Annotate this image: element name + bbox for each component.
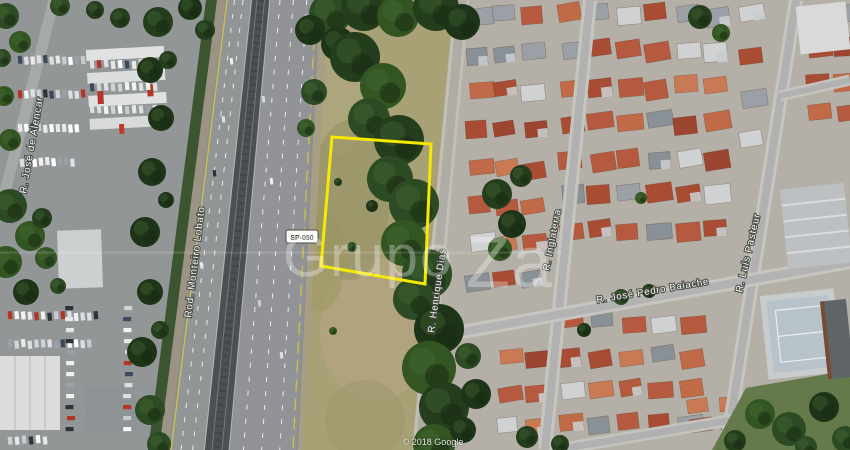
parked-car: [67, 416, 75, 420]
parked-car: [55, 90, 60, 98]
parked-car: [29, 436, 34, 444]
parked-car: [123, 328, 131, 332]
parked-car: [18, 56, 23, 64]
parked-car: [111, 106, 116, 114]
parked-car: [97, 60, 102, 68]
parked-car: [34, 339, 39, 347]
tree-shadow: [822, 405, 836, 419]
parked-car: [41, 339, 46, 347]
parked-car: [123, 317, 131, 321]
tree-shadow: [159, 116, 171, 128]
house-roof: [686, 397, 708, 414]
tree-shadow: [150, 170, 163, 183]
tree-shadow: [371, 205, 376, 210]
house-roof: [703, 76, 728, 94]
tree-shadow: [143, 230, 157, 244]
parked-car: [132, 105, 137, 113]
parked-car: [36, 435, 41, 443]
parked-car: [132, 61, 137, 69]
parked-car: [124, 306, 132, 310]
parked-car: [125, 106, 130, 114]
parked-car: [153, 83, 158, 91]
parked-car: [104, 59, 109, 67]
house-roof: [651, 315, 677, 334]
parked-car: [111, 83, 116, 91]
tree-shadow: [148, 290, 160, 302]
tree-shadow: [44, 256, 54, 266]
tree-shadow: [140, 350, 154, 364]
parked-car: [66, 361, 74, 365]
tree-shadow: [519, 174, 529, 184]
parked-car: [81, 56, 86, 64]
house-roof: [557, 1, 582, 22]
parked-car: [74, 56, 79, 64]
house-annex-roof: [573, 421, 585, 431]
house-roof: [703, 149, 731, 171]
parked-car: [104, 82, 109, 90]
house-roof: [643, 2, 666, 21]
house-roof: [616, 113, 644, 132]
house-annex-roof: [632, 386, 643, 396]
parked-car: [66, 427, 74, 431]
house-roof: [586, 184, 610, 204]
parked-car: [74, 313, 79, 321]
parked-car: [8, 339, 13, 347]
watermark-text-left: Grupo: [283, 224, 454, 289]
parked-car: [66, 372, 74, 376]
parked-car: [18, 90, 23, 98]
parked-car: [66, 339, 74, 343]
parked-car: [38, 158, 43, 166]
house-annex-roof: [601, 86, 613, 97]
parked-car: [139, 105, 144, 113]
parked-car: [60, 311, 65, 319]
satellite-map: SP-050 R. José de Alencar Rod. Monteiro …: [0, 0, 850, 450]
tree-shadow: [395, 136, 418, 159]
parked-car: [66, 328, 74, 332]
parked-car: [90, 60, 95, 68]
parked-car: [87, 339, 92, 347]
house-roof: [741, 88, 769, 108]
tree-shadow: [3, 95, 12, 104]
house-roof: [587, 416, 610, 435]
tree-shadow: [466, 354, 478, 366]
house-roof: [643, 79, 668, 101]
house-roof: [679, 349, 705, 370]
parked-car: [118, 60, 123, 68]
tree-shadow: [159, 329, 167, 337]
parked-car: [62, 89, 67, 97]
house-roof: [643, 41, 671, 63]
tree-shadow: [720, 32, 728, 40]
parked-car: [146, 82, 151, 90]
parked-car: [21, 311, 26, 319]
house-annex-roof: [478, 56, 488, 66]
house-roof: [616, 223, 639, 241]
parked-car: [123, 405, 131, 409]
parked-car: [22, 435, 27, 443]
parked-car: [45, 157, 50, 165]
parked-car: [43, 55, 48, 63]
tree-shadow: [640, 197, 645, 202]
tree-shadow: [119, 17, 128, 26]
parked-car: [65, 306, 73, 310]
house-roof: [465, 120, 487, 139]
house-annex-roof: [537, 128, 548, 138]
tree-shadow: [305, 127, 313, 135]
parked-car: [125, 82, 130, 90]
house-roof: [645, 182, 673, 204]
parked-car: [65, 317, 73, 321]
parked-car: [132, 82, 137, 90]
parked-car: [68, 90, 73, 98]
parked-car: [24, 90, 29, 98]
tree-shadow: [167, 59, 175, 67]
parked-car: [54, 311, 59, 319]
house-roof: [521, 42, 546, 61]
house-roof: [807, 103, 831, 121]
parked-car: [74, 339, 79, 347]
house-roof: [674, 74, 698, 93]
tree-shadow: [474, 392, 488, 406]
tree-shadow: [24, 290, 36, 302]
watermark-text-right: Za: [466, 223, 554, 303]
tree-shadow: [312, 90, 324, 102]
parked-car: [15, 437, 20, 445]
house-roof: [618, 77, 644, 97]
parked-car: [125, 60, 130, 68]
parked-car: [118, 83, 123, 91]
house-roof: [704, 183, 732, 204]
tree-shadow: [156, 20, 170, 34]
tree-shadow: [459, 19, 475, 35]
white-roof-building: [796, 2, 850, 55]
tree-shadow: [308, 28, 322, 42]
tree-shadow: [28, 234, 42, 248]
parked-car: [123, 394, 131, 398]
parked-car: [70, 159, 75, 167]
house-roof: [622, 316, 646, 333]
tree-shadow: [380, 83, 401, 104]
parked-car: [18, 124, 23, 132]
parked-car: [62, 56, 67, 64]
parked-car: [49, 56, 54, 64]
house-annex-roof: [601, 227, 612, 237]
parked-car: [66, 383, 74, 387]
parked-car: [90, 105, 95, 113]
house-roof: [615, 39, 642, 59]
parked-car: [41, 311, 46, 319]
house-roof: [561, 381, 586, 400]
parked-car: [123, 427, 131, 431]
house-roof: [520, 84, 546, 102]
parked-car: [90, 83, 95, 91]
house-roof: [651, 344, 676, 362]
parked-car: [14, 340, 19, 348]
house-annex-roof: [717, 51, 729, 62]
house-roof: [617, 6, 642, 25]
tree-shadow: [758, 412, 772, 426]
house-roof: [520, 6, 542, 25]
tree-shadow: [59, 5, 68, 14]
house-roof: [616, 148, 640, 169]
house-roof: [646, 223, 672, 241]
house-roof: [739, 129, 764, 148]
parked-car: [68, 57, 73, 65]
house-roof: [673, 116, 698, 136]
house-roof: [588, 349, 613, 369]
house-roof: [616, 412, 639, 431]
parked-car: [66, 394, 74, 398]
tree-shadow: [395, 13, 414, 32]
parked-car: [97, 83, 102, 91]
house-roof: [588, 380, 614, 399]
parked-car: [118, 105, 123, 113]
satellite-image: SP-050 R. José de Alencar Rod. Monteiro …: [0, 0, 850, 450]
parked-car: [24, 56, 29, 64]
tree-shadow: [698, 15, 709, 26]
house-annex-roof: [506, 86, 517, 95]
parked-car: [74, 91, 79, 99]
parked-car: [51, 158, 56, 166]
tree-shadow: [148, 408, 162, 422]
house-annex-roof: [505, 53, 515, 62]
parked-car: [125, 372, 133, 376]
tree-shadow: [4, 260, 18, 274]
house-roof: [500, 348, 524, 364]
house-roof: [469, 158, 495, 175]
house-roof: [680, 315, 707, 334]
house-roof: [492, 5, 515, 22]
tree-shadow: [188, 6, 199, 17]
house-roof: [469, 81, 495, 99]
parked-car: [104, 106, 109, 114]
tree-shadow: [94, 9, 102, 17]
house-roof: [675, 222, 701, 243]
parked-car: [81, 89, 86, 97]
parked-car: [36, 55, 41, 63]
tree-shadow: [57, 285, 64, 292]
parked-car: [30, 56, 35, 64]
parked-car: [43, 89, 48, 97]
tree-shadow: [525, 435, 535, 445]
house-roof: [677, 42, 702, 59]
house-roof: [590, 151, 617, 173]
parked-car: [60, 339, 65, 347]
house-annex-roof: [716, 227, 727, 236]
parked-car: [67, 350, 75, 354]
house-roof: [619, 349, 644, 367]
tree-shadow: [204, 29, 213, 38]
parked-car: [49, 124, 54, 132]
parked-car: [87, 312, 92, 320]
parked-car: [47, 339, 52, 347]
house-roof: [525, 350, 549, 368]
house-roof: [497, 416, 518, 433]
house-roof: [679, 378, 704, 398]
parked-car: [68, 124, 73, 132]
house-roof: [586, 111, 614, 130]
warehouse-building: [780, 183, 850, 269]
house-roof: [738, 47, 763, 65]
parked-car: [80, 312, 85, 320]
tree-shadow: [337, 181, 341, 185]
tree-shadow: [1, 57, 9, 65]
parked-car: [80, 340, 85, 348]
tree-shadow: [733, 439, 743, 449]
parked-car: [74, 124, 79, 132]
parked-car: [47, 313, 52, 321]
parked-car: [123, 416, 131, 420]
parked-car: [124, 383, 132, 387]
parked-car: [8, 436, 13, 444]
tree-shadow: [332, 330, 336, 334]
tree-shadow: [148, 68, 160, 80]
parked-car: [34, 312, 39, 320]
building-roof: [57, 229, 103, 289]
parked-car: [65, 405, 73, 409]
house-annex-roof: [570, 356, 581, 367]
house-roof: [648, 381, 674, 399]
house-roof: [492, 120, 515, 137]
tree-shadow: [495, 192, 509, 206]
house-annex-roof: [690, 192, 702, 202]
parked-car: [62, 124, 67, 132]
parked-car: [27, 311, 32, 319]
parked-car: [54, 340, 59, 348]
tree-shadow: [165, 199, 172, 206]
parked-car: [55, 124, 60, 132]
parked-car: [57, 157, 62, 165]
tree-shadow: [583, 329, 589, 335]
tree-shadow: [18, 40, 28, 50]
parked-car: [139, 83, 144, 91]
tree-shadow: [4, 14, 16, 26]
tree-shadow: [8, 138, 18, 148]
tree-shadow: [41, 217, 50, 226]
parked-car: [27, 341, 32, 349]
parked-car: [43, 125, 48, 133]
parked-car: [97, 105, 102, 113]
parked-car: [49, 91, 54, 99]
tree-shadow: [7, 203, 22, 218]
parked-car: [14, 311, 19, 319]
parked-car: [111, 61, 116, 69]
parked-car: [8, 311, 13, 319]
parked-car: [21, 339, 26, 347]
parked-car: [64, 157, 69, 165]
parked-car: [43, 436, 48, 444]
parked-car: [55, 55, 60, 63]
house-annex-roof: [661, 160, 671, 170]
parked-car: [93, 311, 98, 319]
map-attribution: © 2018 Google: [403, 437, 464, 447]
